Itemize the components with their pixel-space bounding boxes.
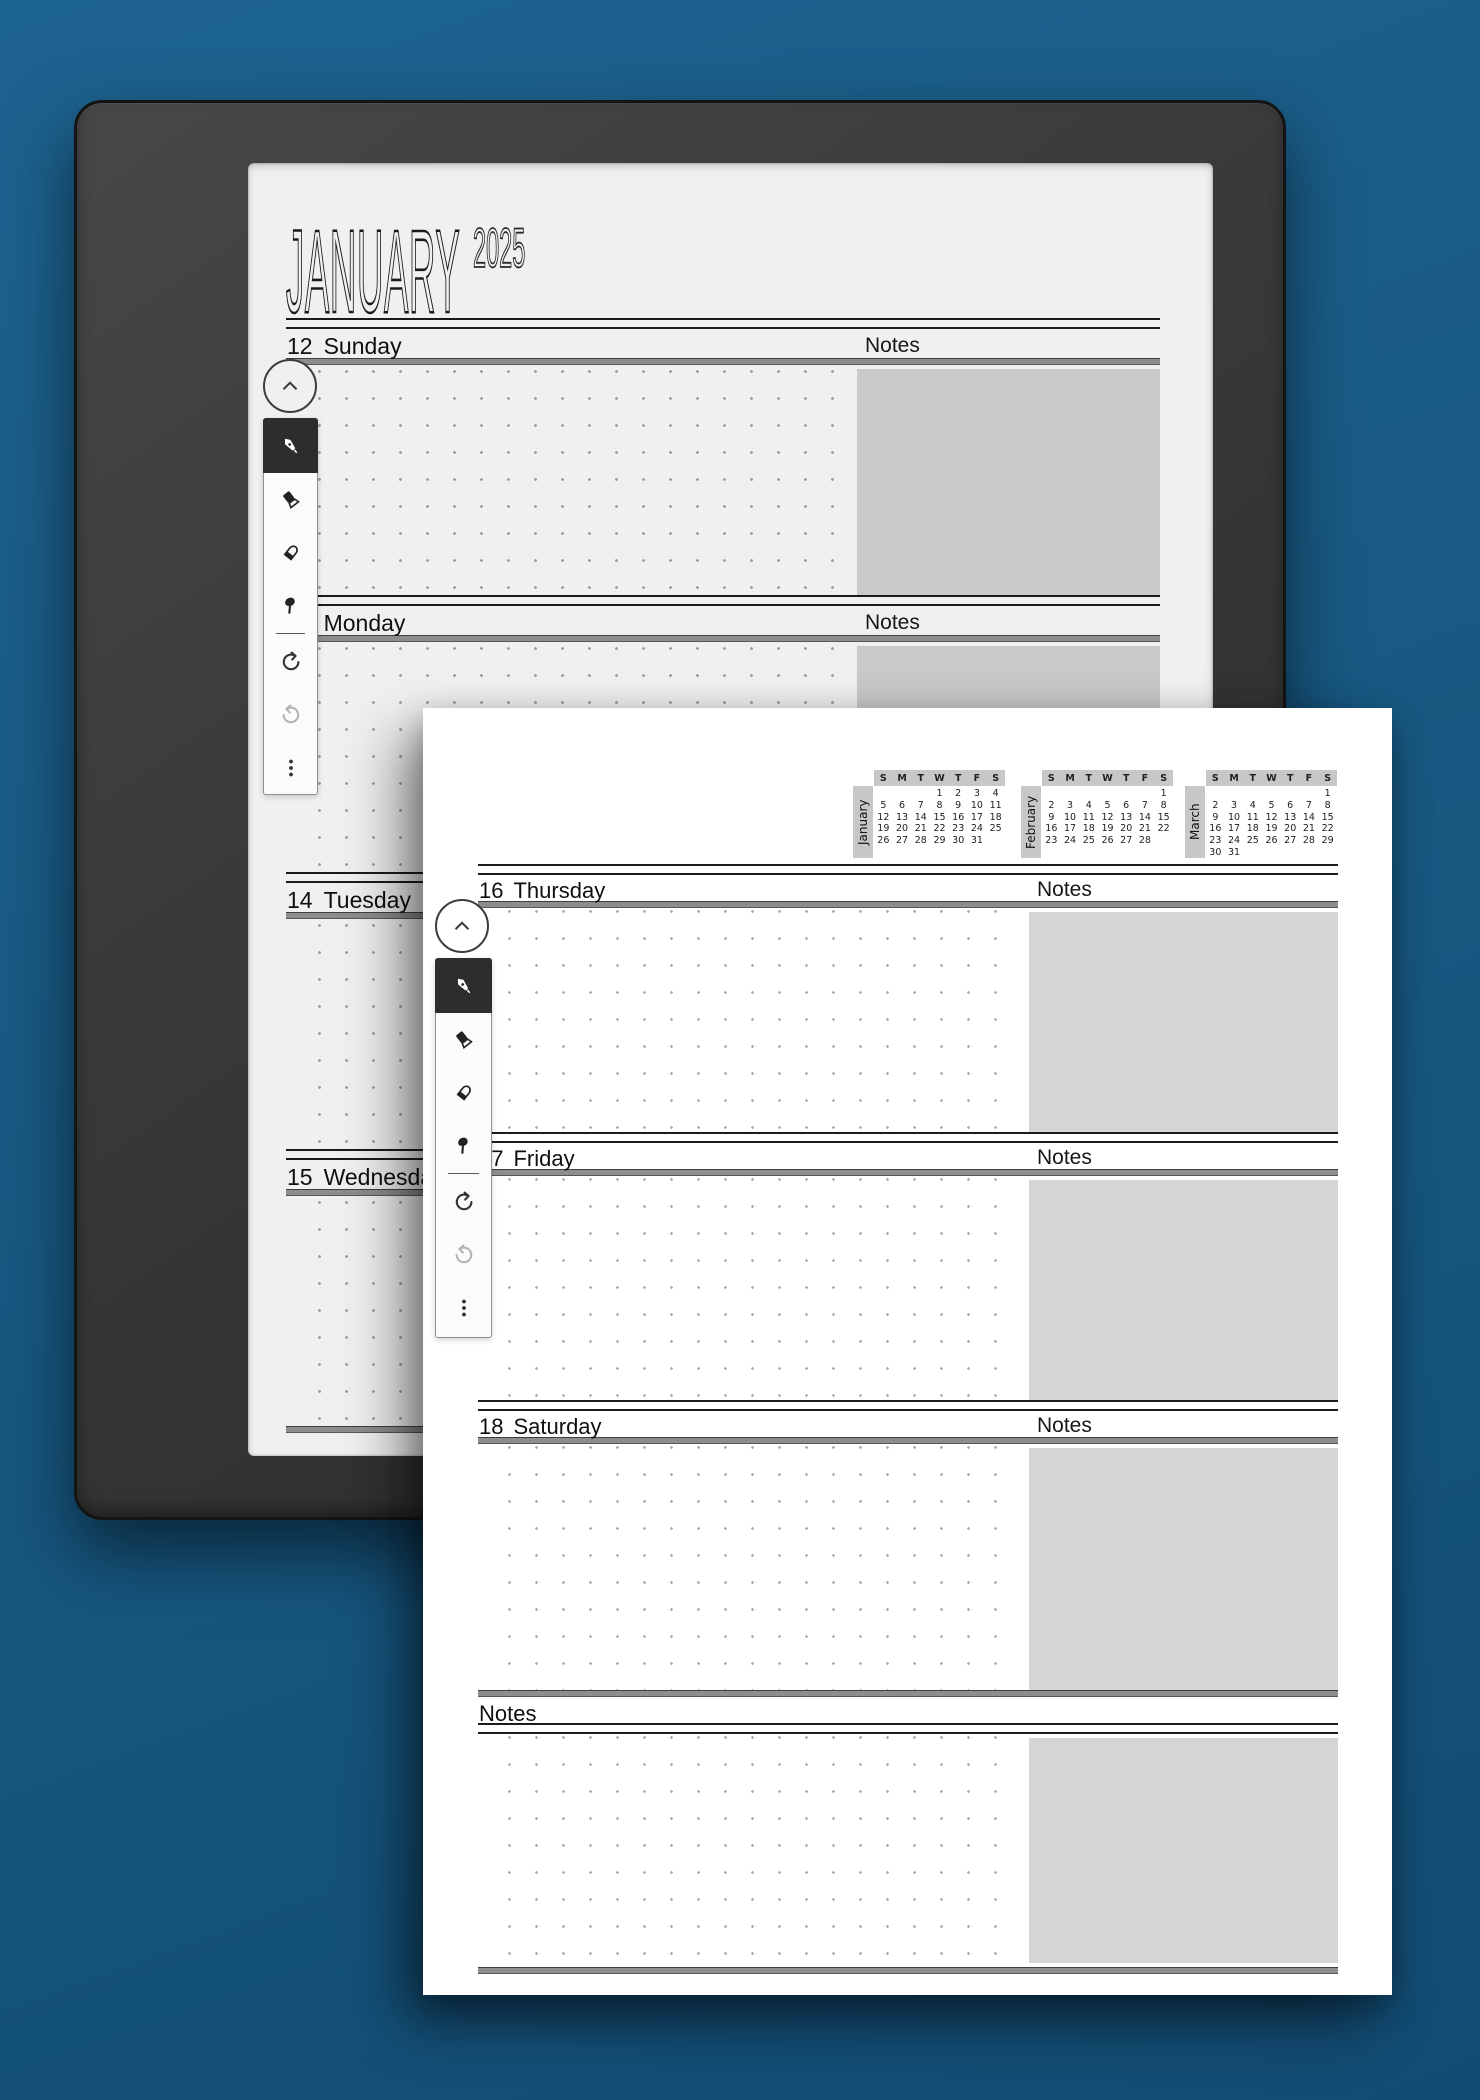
lasso-tool-button[interactable]: [436, 1119, 491, 1172]
highlighter-icon: [452, 1028, 476, 1052]
eraser-icon: [452, 1081, 476, 1105]
overlay-planner-page: SMTWTFS January 123456789101112131415161…: [423, 708, 1392, 1995]
eraser-tool-button[interactable]: [264, 526, 317, 579]
lasso-tool-button[interactable]: [264, 579, 317, 632]
section-top-rule: [478, 1132, 1338, 1143]
dot-grid-writing-area[interactable]: [486, 1176, 1020, 1404]
writing-toolbar: [435, 958, 492, 1338]
day-section: 17Friday Notes: [478, 1132, 1338, 1400]
more-options-button[interactable]: [436, 1281, 491, 1334]
highlighter-icon: [279, 488, 303, 512]
undo-button[interactable]: [436, 1175, 491, 1228]
day-label: 16Thursday: [479, 878, 605, 904]
section-header-rule: [286, 358, 1160, 365]
eraser-icon: [279, 541, 303, 565]
notes-box[interactable]: [857, 369, 1160, 596]
section-header-rule: [478, 1437, 1338, 1444]
chevron-up-icon: [449, 913, 475, 939]
toolbar-divider: [448, 1173, 479, 1174]
page-header: JANUARY 2025: [286, 163, 1160, 318]
day-label: 14Tuesday: [287, 887, 411, 914]
calendar-weekday-header: SMTWTFS: [1042, 770, 1173, 786]
notes-column-label: Notes: [1037, 878, 1092, 902]
toolbar-divider: [276, 633, 305, 634]
section-top-rule: [286, 318, 1160, 329]
lasso-icon: [452, 1134, 476, 1158]
notes-section-label: Notes: [479, 1701, 536, 1727]
calendar-weekday-header: SMTWTFS: [874, 770, 1005, 786]
day-section: 16Thursday Notes: [478, 864, 1338, 1132]
more-icon: [452, 1296, 476, 1320]
notes-box[interactable]: [1029, 1180, 1338, 1402]
calendar-month-label: February: [1021, 786, 1041, 858]
overlay-page-content: 16Thursday Notes 17Friday Notes: [478, 864, 1338, 1966]
section-header-rule: [478, 901, 1338, 908]
section-top-rule: [478, 864, 1338, 875]
redo-button[interactable]: [264, 688, 317, 741]
dot-grid-writing-area[interactable]: [486, 908, 1020, 1136]
section-header-rule: [286, 635, 1160, 642]
undo-button[interactable]: [264, 635, 317, 688]
section-top-rule: [286, 595, 1160, 606]
pen-icon: [452, 974, 476, 998]
notes-section: Notes: [478, 1690, 1338, 1966]
page-bottom-rule: [478, 1967, 1338, 1974]
undo-icon: [452, 1190, 476, 1214]
day-label: 18Saturday: [479, 1414, 602, 1440]
more-icon: [279, 756, 303, 780]
mini-calendar-march[interactable]: SMTWTFS March 12345678910111213141516171…: [1185, 770, 1337, 858]
calendar-day-grid: 1234567891011121314151617181920212223242…: [874, 788, 1005, 859]
more-options-button[interactable]: [264, 741, 317, 794]
section-header-rule: [478, 1169, 1338, 1176]
page-title-year: 2025: [473, 220, 525, 276]
calendar-month-label: January: [853, 786, 873, 858]
day-label: 12Sunday: [287, 333, 402, 360]
lasso-icon: [279, 594, 303, 618]
notes-column-label: Notes: [865, 611, 920, 635]
notes-column-label: Notes: [1037, 1414, 1092, 1438]
scene: JANUARY 2025 12Sunday Notes: [0, 0, 1480, 2100]
day-section: 12Sunday Notes: [286, 318, 1160, 595]
chevron-up-icon: [277, 373, 303, 399]
day-section: 18Saturday Notes: [478, 1400, 1338, 1690]
calendar-month-label: March: [1185, 786, 1205, 858]
highlighter-tool-button[interactable]: [436, 1013, 491, 1066]
dot-grid-writing-area[interactable]: [486, 1734, 1020, 1965]
mini-calendar-february[interactable]: SMTWTFS February 12345678910111213141516…: [1021, 770, 1173, 858]
pen-icon: [279, 434, 303, 458]
page-title-month: JANUARY: [286, 213, 460, 331]
calendar-weekday-header: SMTWTFS: [1206, 770, 1337, 786]
collapse-toolbar-button[interactable]: [263, 359, 317, 413]
pen-tool-button[interactable]: [435, 958, 492, 1013]
eraser-tool-button[interactable]: [436, 1066, 491, 1119]
redo-icon: [279, 703, 303, 727]
day-label: 17Friday: [479, 1146, 575, 1172]
dot-grid-writing-area[interactable]: [486, 1444, 1020, 1694]
notes-column-label: Notes: [865, 334, 920, 358]
dot-grid-writing-area[interactable]: [298, 365, 840, 597]
calendar-day-grid: 1234567891011121314151617181920212223242…: [1042, 788, 1173, 859]
notes-box[interactable]: [1029, 912, 1338, 1134]
highlighter-tool-button[interactable]: [264, 473, 317, 526]
notes-box[interactable]: [1029, 1738, 1338, 1963]
collapse-toolbar-button[interactable]: [435, 899, 489, 953]
mini-calendar-january[interactable]: SMTWTFS January 123456789101112131415161…: [853, 770, 1005, 858]
day-label: 15Wednesday: [287, 1164, 445, 1191]
redo-button[interactable]: [436, 1228, 491, 1281]
section-top-rule: [478, 1690, 1338, 1697]
redo-icon: [452, 1243, 476, 1267]
pen-tool-button[interactable]: [263, 418, 318, 473]
undo-icon: [279, 650, 303, 674]
section-top-rule: [478, 1400, 1338, 1411]
section-header-rule: [478, 1723, 1338, 1734]
notes-column-label: Notes: [1037, 1146, 1092, 1170]
writing-toolbar: [263, 418, 318, 795]
calendar-day-grid: 1234567891011121314151617181920212223242…: [1206, 788, 1337, 859]
notes-box[interactable]: [1029, 1448, 1338, 1692]
